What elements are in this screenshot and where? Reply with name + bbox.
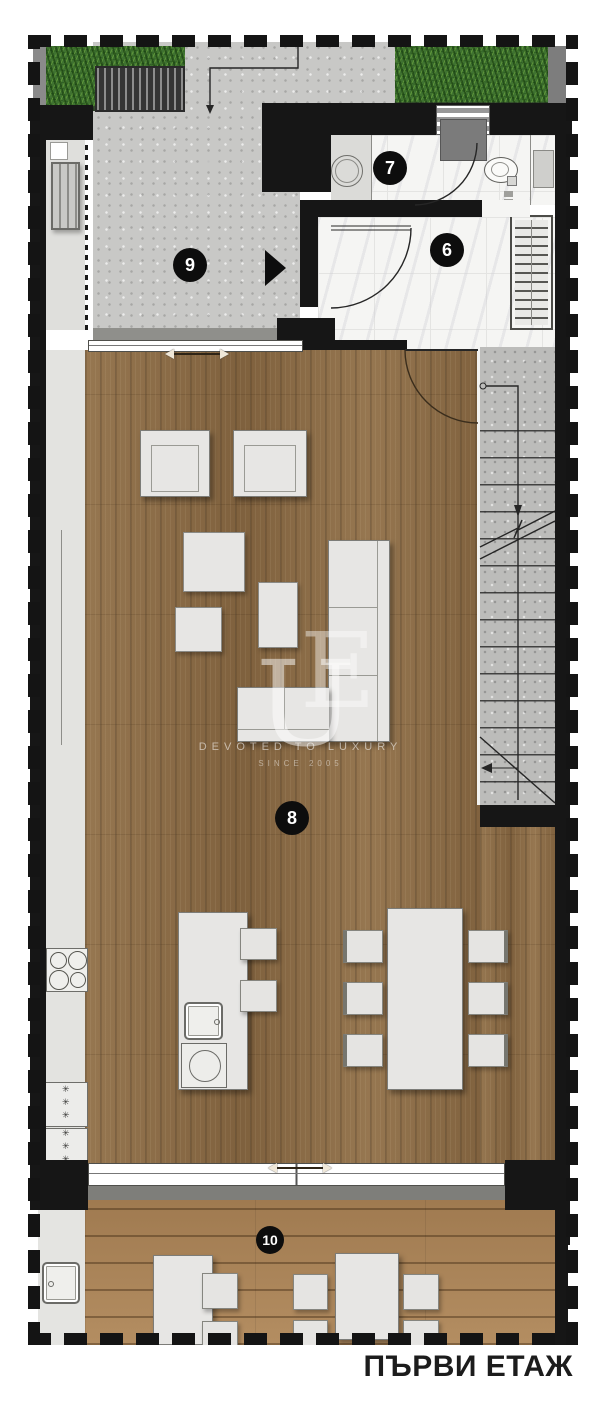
dining-chair [343, 982, 383, 1015]
wall-bathroom-hallway [300, 200, 482, 217]
side-table [258, 582, 298, 648]
entry-dotted-line [85, 138, 88, 330]
floor-title: ПЪРВИ ЕТАЖ [364, 1350, 573, 1384]
terrace-chair [293, 1274, 328, 1310]
freezer-marks: ✳✳✳ [59, 1085, 73, 1124]
dashed-boundary-right [566, 35, 578, 1345]
room-label-entry: 9 [173, 248, 207, 282]
sliding-door-top-arrow-icon [165, 351, 229, 359]
utility-box [50, 142, 68, 160]
shower-tray [440, 119, 487, 161]
wall-stairs-bottom [480, 805, 555, 827]
dashed-boundary-bottom [28, 1333, 578, 1345]
coffee-table [183, 532, 245, 592]
bathroom-shelf-divider [530, 135, 531, 205]
wall-entry-bathroom [262, 103, 331, 192]
wall-hallway-left [300, 217, 318, 307]
garden-edge-right [548, 46, 566, 106]
dining-chair [343, 930, 383, 963]
island-sink-faucet [214, 1019, 220, 1025]
floor-plan: 9 7 6 ✳✳✳ ✳✳✳ [28, 35, 578, 1345]
room-label-terrace: 10 [256, 1226, 284, 1254]
freezer-upper: ✳✳✳ [44, 1082, 88, 1127]
dining-chair [468, 1034, 508, 1067]
terrace-table [335, 1253, 399, 1340]
dashed-boundary-left [28, 35, 40, 1345]
dining-chair [468, 982, 508, 1015]
wall-top-left-corner [46, 105, 93, 140]
cooktop-burner [49, 970, 69, 990]
outdoor-sink-drain [48, 1281, 54, 1287]
bathroom-cabinet [533, 150, 554, 188]
grass-right [395, 46, 548, 106]
floor-plan-page: { "title": { "floor_label": "ПЪРВИ ЕТАЖ"… [0, 0, 607, 1403]
radiator [510, 215, 553, 330]
terrace-chair [202, 1273, 238, 1309]
door-gap [482, 200, 530, 217]
dining-chair [468, 930, 508, 963]
toilet-flush [507, 176, 517, 186]
terrace-threshold [88, 1186, 505, 1200]
armchair [140, 430, 210, 497]
dashed-boundary-top [28, 35, 578, 47]
room-label-bathroom: 7 [373, 151, 407, 185]
bar-stool [240, 980, 277, 1012]
cooktop-burner [68, 951, 87, 970]
bar-stool [240, 928, 277, 960]
room-label-living: 8 [275, 801, 309, 835]
island-hob-ring [189, 1050, 221, 1082]
sliding-door-bottom-arrow-icon [268, 1165, 332, 1173]
kitchen-counter [46, 350, 85, 1165]
cooktop-burner [70, 972, 86, 988]
entry-direction-arrow-icon [265, 250, 286, 286]
dining-table [387, 908, 463, 1090]
wall-terrace-right [505, 1160, 570, 1210]
room-label-hallway: 6 [430, 233, 464, 267]
toilet-bowl [491, 162, 509, 177]
armchair [233, 430, 307, 497]
bathroom-sink-basin [335, 159, 359, 183]
side-table [175, 607, 222, 652]
sofa-seat [237, 687, 329, 742]
terrace-chair [403, 1274, 439, 1310]
sofa-chaise [328, 540, 390, 742]
entry-gate [95, 66, 185, 112]
garden-bench [51, 162, 80, 230]
wall-living-top [335, 340, 407, 350]
cooktop-burner [50, 952, 67, 969]
dining-chair [343, 1034, 383, 1067]
kitchen-counter-edge [61, 530, 62, 745]
bathroom-accessory [504, 191, 513, 197]
stair-steps [480, 430, 555, 805]
